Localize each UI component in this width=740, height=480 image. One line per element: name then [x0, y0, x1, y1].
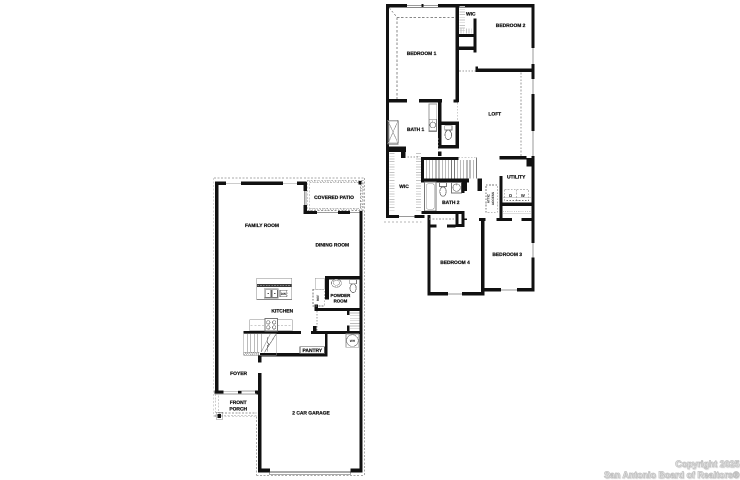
- svg-text:FRONT: FRONT: [230, 400, 247, 406]
- svg-text:PORCH: PORCH: [229, 406, 247, 412]
- svg-text:FAMILY ROOM: FAMILY ROOM: [245, 223, 279, 229]
- svg-text:UTILITY: UTILITY: [507, 175, 526, 181]
- svg-text:ACCESS: ACCESS: [491, 192, 495, 205]
- svg-text:D: D: [509, 193, 512, 198]
- svg-text:BEDROOM 3: BEDROOM 3: [492, 252, 522, 258]
- svg-text:REF: REF: [316, 295, 320, 301]
- svg-text:COVERED PATIO: COVERED PATIO: [314, 195, 354, 201]
- svg-text:DW: DW: [281, 292, 286, 296]
- svg-text:FOYER: FOYER: [230, 371, 247, 377]
- svg-text:BEDROOM 4: BEDROOM 4: [440, 260, 470, 266]
- svg-text:PANTRY: PANTRY: [303, 348, 323, 354]
- svg-text:POWDER: POWDER: [331, 293, 352, 298]
- svg-text:BATH 2: BATH 2: [442, 200, 460, 206]
- svg-text:WIC: WIC: [466, 12, 476, 18]
- svg-text:W: W: [521, 193, 525, 198]
- svg-text:BATH 1: BATH 1: [407, 127, 425, 133]
- svg-text:BEDROOM 2: BEDROOM 2: [496, 23, 526, 29]
- svg-text:BEDROOM 1: BEDROOM 1: [407, 51, 437, 57]
- svg-text:2 CAR GARAGE: 2 CAR GARAGE: [292, 410, 330, 416]
- svg-text:WIC: WIC: [399, 184, 409, 190]
- svg-text:ROOM: ROOM: [334, 298, 348, 303]
- svg-text:KITCHEN: KITCHEN: [271, 309, 293, 315]
- svg-text:DINING ROOM: DINING ROOM: [315, 242, 349, 248]
- svg-text:WH: WH: [350, 339, 356, 343]
- svg-text:LOFT: LOFT: [488, 112, 501, 118]
